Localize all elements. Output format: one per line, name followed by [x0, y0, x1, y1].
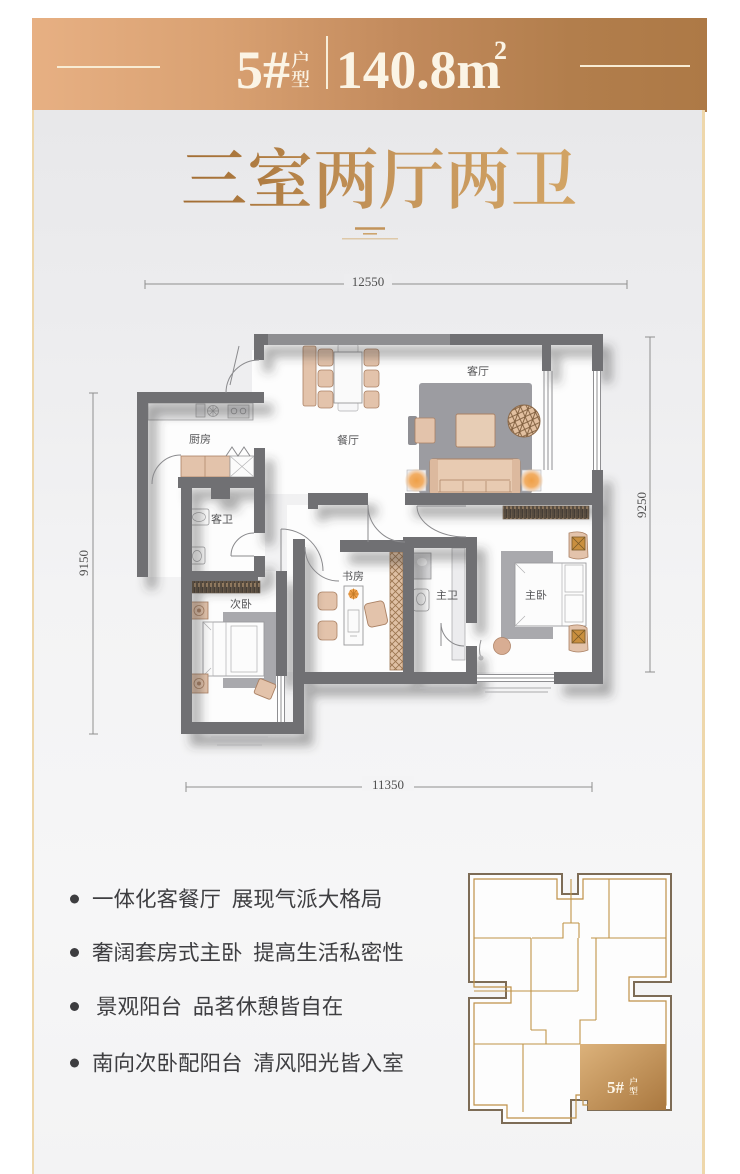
svg-text:5#: 5#: [607, 1078, 625, 1097]
